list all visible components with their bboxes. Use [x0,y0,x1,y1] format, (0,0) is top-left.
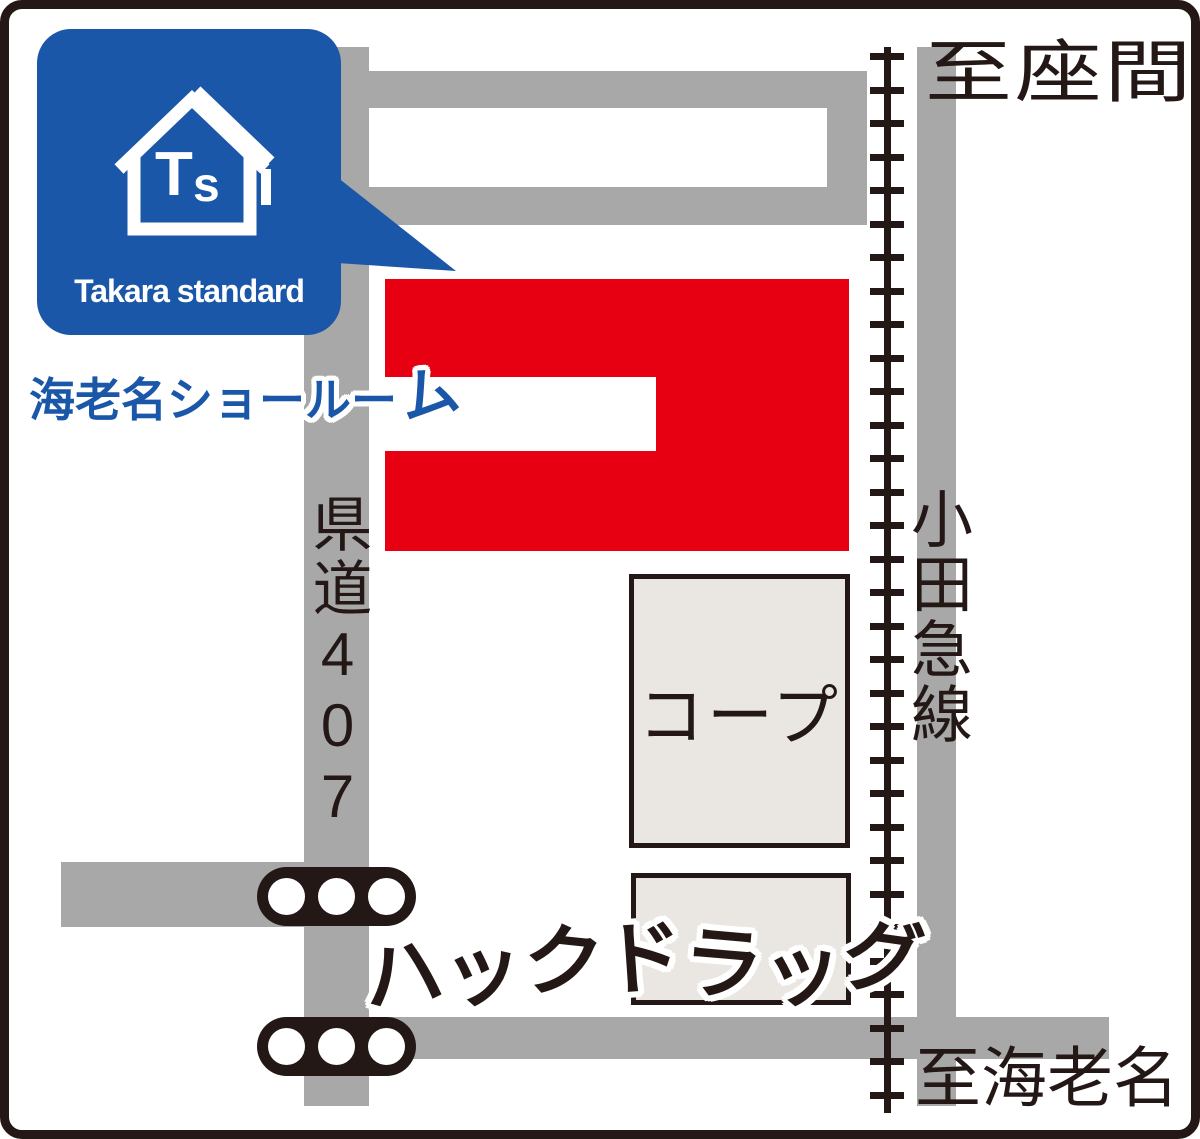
railway-tie [870,422,904,429]
route-map: コープ 至座間 至海老名 小田急線 県道407 ハックドラッグ T s Taka… [0,0,1200,1139]
railway-tie [870,1092,904,1099]
hackdrug-label-char: グ [838,914,928,1004]
traffic-light-icon [257,867,416,926]
monogram-T: T [155,140,193,209]
railway-tie [870,656,904,663]
logo-card: T s Takara standard [37,29,341,335]
railway-tie [870,757,904,764]
railway-tie [870,154,904,161]
monogram-s: s [193,159,220,212]
railway-tie [870,489,904,496]
showroom-label-last-char: ム [389,341,466,437]
railway-tie [870,1058,904,1065]
hackdrug-label: ハックドラッグ [363,921,923,1001]
railway-tie [870,53,904,60]
railway-tie [870,690,904,697]
traffic-light-lamp [318,1028,355,1065]
railway-tie [870,321,904,328]
railway-tie [870,824,904,831]
label-pref-road-407: 県道407 [307,493,367,834]
railway-tie [870,857,904,864]
showroom-label-main: 海老名ショールー [29,374,397,426]
railway-tie [870,790,904,797]
railway-tie [870,221,904,228]
railway-tie [870,891,904,898]
railway-tie [870,556,904,563]
hackdrug-label-char: ク [519,919,607,1007]
label-to-ebina: 至海老名 [915,1045,1179,1111]
railway-tie [870,355,904,362]
house-icon: T s [107,81,277,243]
hackdrug-label-char: ッ [440,928,527,1015]
traffic-light-icon [257,1017,416,1076]
traffic-light-lamp [268,878,305,915]
traffic-light-lamp [368,878,405,915]
traffic-light-lamp [368,1028,405,1065]
showroom-label: 海老名ショールーム [29,349,457,433]
label-to-zama: 至座間 [925,39,1194,107]
traffic-light-lamp [318,878,355,915]
railway-tie [870,187,904,194]
railway-tie [870,87,904,94]
traffic-light-lamp [268,1028,305,1065]
brand-logotype: Takara standard [37,273,341,310]
railway-tie [870,120,904,127]
railway-tie [870,623,904,630]
hackdrug-label-char: ラ [680,922,767,1009]
railway-tie [870,589,904,596]
railway-tie [870,254,904,261]
railway-tie [870,723,904,730]
coop-label: コープ [638,663,841,759]
hackdrug-label-char: ド [600,916,685,1001]
railway-tie [870,388,904,395]
railway-tie [870,455,904,462]
hackdrug-label-char: ッ [759,927,847,1015]
speech-bubble-tail [329,169,469,289]
coop-building: コープ [629,574,850,848]
hackdrug-label-char: ハ [358,930,448,1020]
label-odakyu-line: 小田急線 [904,487,966,747]
railway-tie [870,1025,904,1032]
railway-tie [870,522,904,529]
railway-tie [870,288,904,295]
